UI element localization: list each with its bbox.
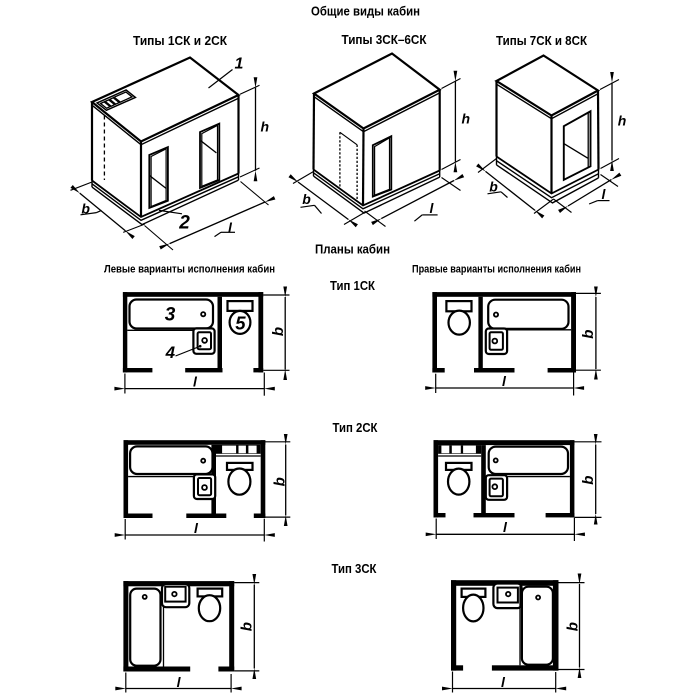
- svg-text:b: b: [580, 476, 597, 485]
- svg-text:h: h: [618, 113, 627, 129]
- svg-text:5: 5: [235, 313, 246, 334]
- svg-text:Типы 3СК–6СК: Типы 3СК–6СК: [342, 32, 427, 47]
- svg-text:b: b: [270, 327, 287, 336]
- svg-text:Тип 1СК: Тип 1СК: [330, 279, 375, 293]
- svg-text:b: b: [580, 330, 597, 339]
- svg-text:Тип 2СК: Тип 2СК: [333, 421, 378, 435]
- svg-text:Тип 3СК: Тип 3СК: [332, 562, 377, 576]
- svg-text:Общие виды кабин: Общие виды кабин: [311, 4, 420, 19]
- svg-text:Типы 7СК и 8СК: Типы 7СК и 8СК: [496, 33, 587, 48]
- svg-text:3: 3: [165, 304, 176, 325]
- svg-text:1: 1: [235, 56, 244, 73]
- svg-text:b: b: [302, 191, 311, 207]
- svg-text:b: b: [81, 201, 90, 217]
- svg-text:2: 2: [178, 213, 190, 234]
- svg-text:b: b: [565, 622, 582, 631]
- svg-text:Планы кабин: Планы кабин: [315, 242, 390, 257]
- svg-text:h: h: [261, 119, 270, 135]
- svg-text:Левые варианты исполнения каби: Левые варианты исполнения кабин: [104, 263, 275, 275]
- svg-text:4: 4: [165, 343, 176, 362]
- svg-text:Типы 1СК и 2СК: Типы 1СК и 2СК: [133, 33, 227, 48]
- svg-text:b: b: [271, 477, 288, 486]
- svg-text:Правые варианты исполнения каб: Правые варианты исполнения кабин: [412, 263, 581, 275]
- svg-text:b: b: [489, 179, 498, 195]
- svg-text:b: b: [239, 622, 256, 631]
- svg-text:h: h: [462, 111, 471, 127]
